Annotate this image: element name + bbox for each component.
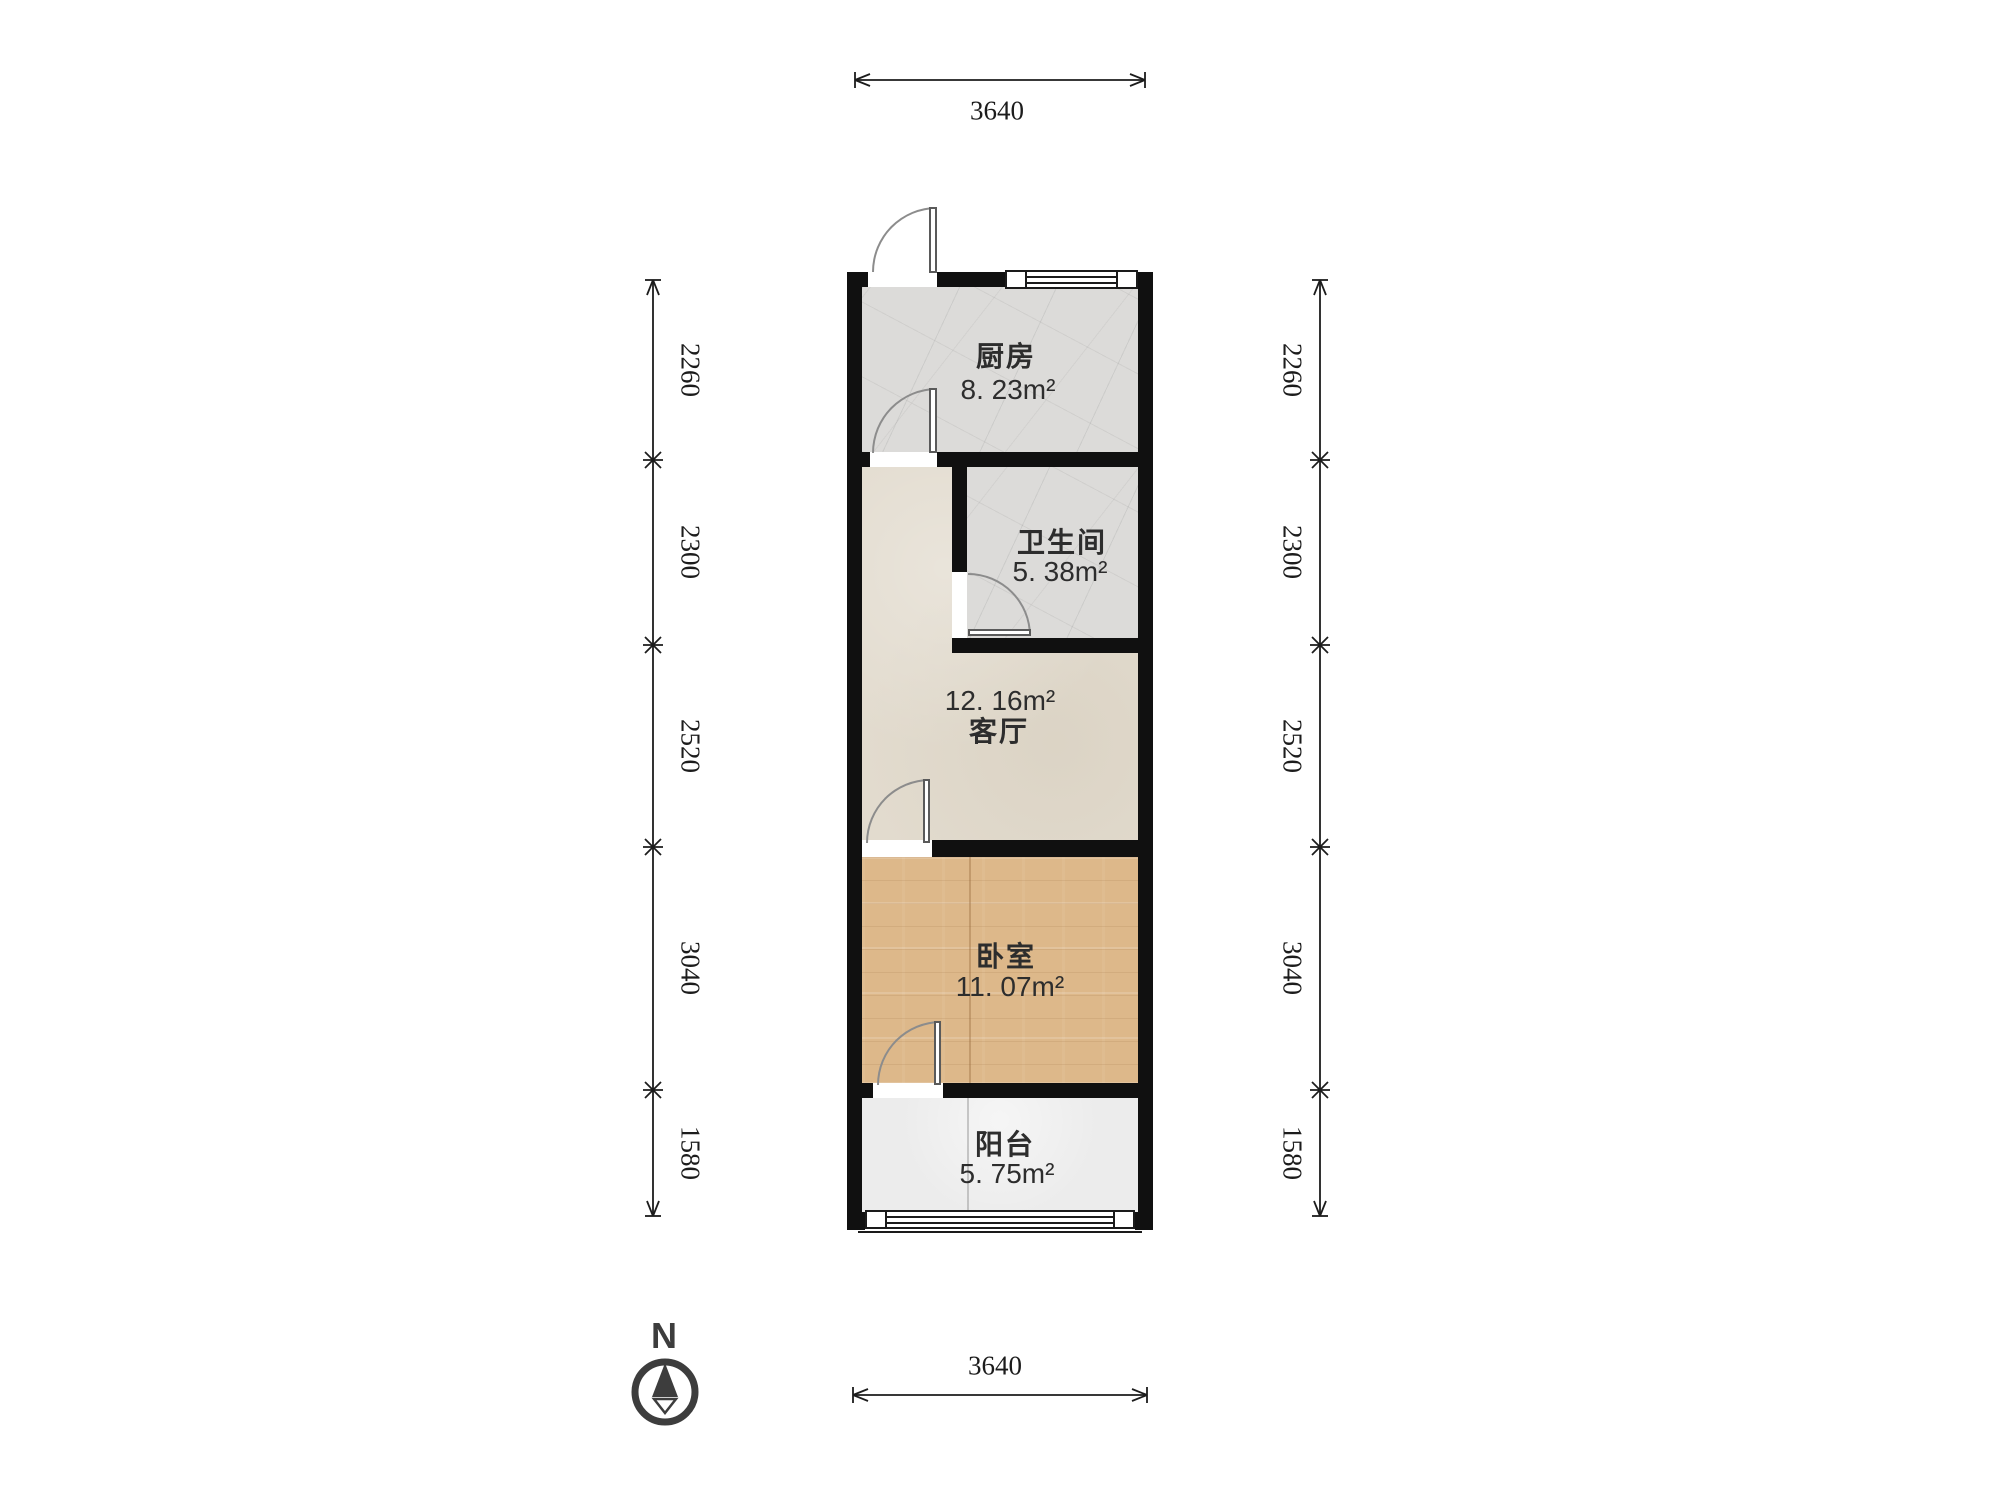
dim-left-2: 2520: [675, 719, 706, 773]
floor-plan-canvas: 厨房 8. 23m² 卫生间 5. 38m² 12. 16m² 客厅 卧室 11…: [0, 0, 2000, 1500]
dim-right-0: 2260: [1277, 343, 1308, 397]
compass-icon: [635, 1362, 695, 1422]
compass-north-label: N: [651, 1315, 677, 1357]
dim-right-3: 3040: [1277, 941, 1308, 995]
dim-right-2: 2520: [1277, 719, 1308, 773]
dim-top: 3640: [970, 96, 1024, 127]
dim-left-4: 1580: [675, 1126, 706, 1180]
dim-left-3: 3040: [675, 941, 706, 995]
dim-right-1: 2300: [1277, 525, 1308, 579]
dim-left-1: 2300: [675, 525, 706, 579]
dim-right-4: 1580: [1277, 1126, 1308, 1180]
dim-bottom: 3640: [968, 1351, 1022, 1382]
dimension-and-compass-graphics: [0, 0, 2000, 1500]
dim-left-0: 2260: [675, 343, 706, 397]
